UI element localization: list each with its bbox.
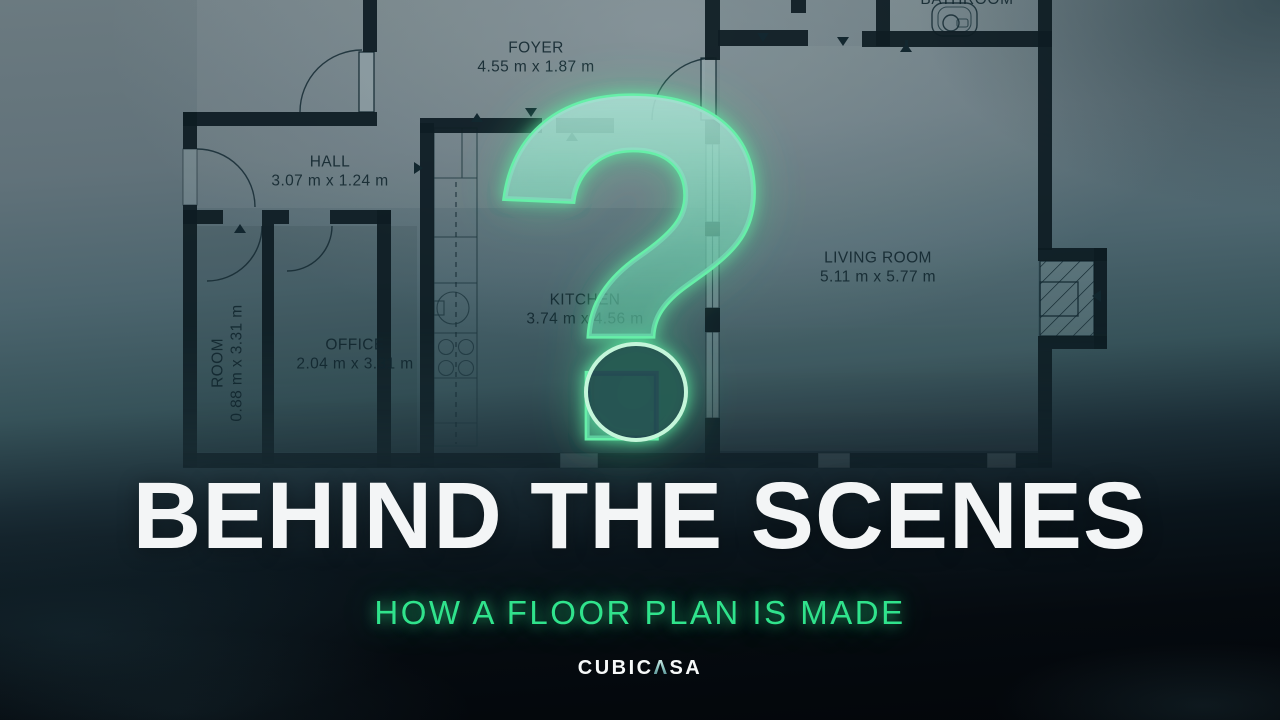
logo-text-right: SA [669, 657, 702, 679]
question-mark-dot [586, 344, 686, 440]
cubicasa-logo: CUBICΛSA [0, 657, 1280, 680]
thumbnail-frame: FOYER 4.55 m x 1.87 m HALL 3.07 m x 1.24… [0, 0, 1280, 720]
question-mark-glyph: ? [482, 0, 781, 542]
main-title: BEHIND THE SCENES [0, 468, 1280, 564]
logo-text-left: CUBIC [578, 657, 654, 679]
logo-caret-icon: Λ [654, 657, 670, 679]
subtitle: HOW A FLOOR PLAN IS MADE [0, 595, 1280, 631]
